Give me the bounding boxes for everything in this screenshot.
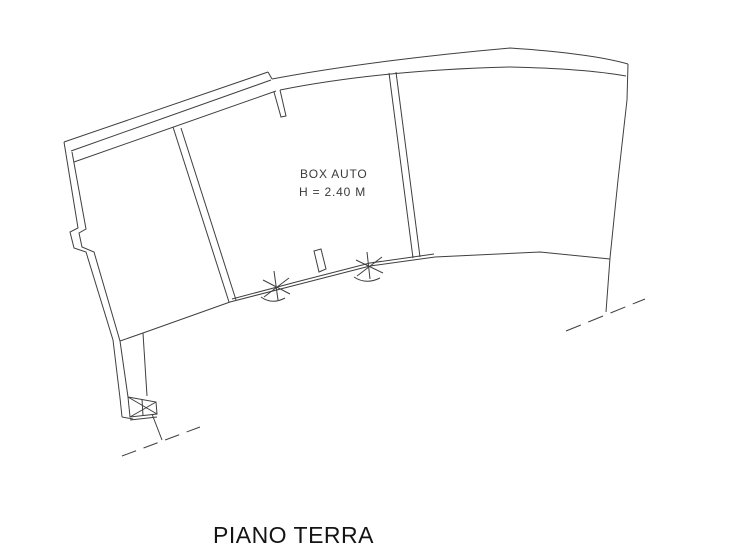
top-wall-inner-line [74,91,276,162]
bottom-edge [120,252,610,341]
dashed-line-bottom-left [122,427,200,456]
shaft-right-line [143,333,147,396]
top-wall-outer-line [64,72,268,142]
marker-arc [354,277,380,281]
garage-room-label: BOX AUTO [300,167,368,181]
curved-wall-inner-line [280,67,626,90]
floor-plan-page: BOX AUTO H = 2.40 M PIANO TERRA [0,0,742,554]
top-wall-band [64,48,628,162]
left-wall-inner-line [72,152,120,341]
garage-left-wall-line-b [181,128,236,300]
top-wall-middle-line [71,80,271,151]
shaft-box-divider [142,399,143,416]
left-exterior-wall [64,142,133,419]
curved-wall-outer-line [272,48,628,79]
gate-post [314,249,326,272]
plan-title: PIANO TERRA [213,522,374,548]
garage-right-wall-line-b [396,72,420,257]
stair-shaft [120,333,162,440]
survey-marker-left [261,271,290,301]
shaft-left-line [120,341,128,397]
marker-arc [261,297,285,301]
left-wall-outer-line [64,142,122,417]
garage-left-wall-line-a [173,127,229,302]
survey-marker-right [354,252,383,281]
wall-stub [274,90,286,117]
survey-markers [261,252,383,301]
right-boundary-wall [606,64,628,312]
garage-height-label: H = 2.40 M [299,185,366,199]
garage-partition-walls [173,72,420,302]
shaft-descender-line [152,414,162,440]
dashed-line-bottom-right [566,299,645,331]
bottom-edge-main-line [120,252,610,341]
garage-right-wall-line-a [389,73,413,258]
floor-plan-drawing: BOX AUTO H = 2.40 M PIANO TERRA [0,0,742,554]
dashed-boundary-lines [122,299,645,456]
gate-post-outline [314,249,326,272]
bottom-edge-secondary-line [232,254,434,299]
right-wall-line [606,64,628,312]
top-wall-step [268,72,272,79]
